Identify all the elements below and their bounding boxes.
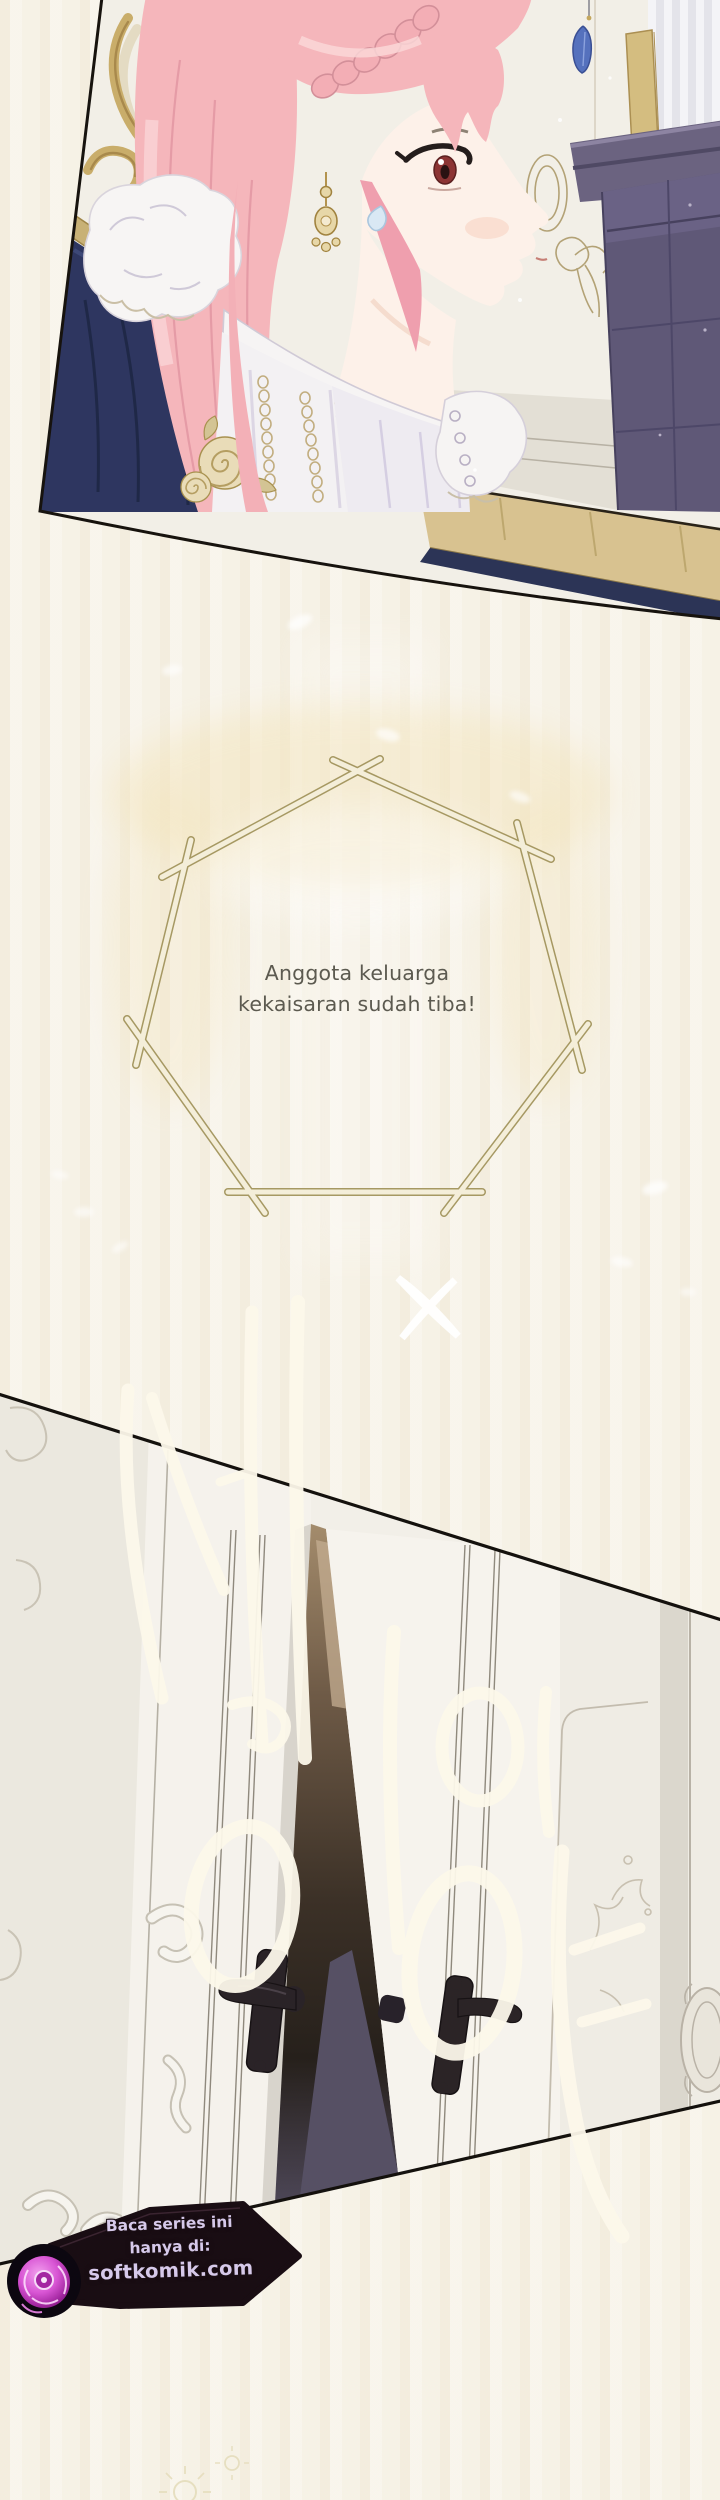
dialogue-line-1: Anggota keluarga [265,961,450,985]
cross-sparkle [398,1278,458,1338]
right-etched-wall [548,1550,720,2270]
watermark: Baca series ini hanya di: softkomik.com [69,2210,271,2286]
dialogue-line-2: kekaisaran sudah tiba! [238,992,476,1016]
blush [465,217,509,239]
dialogue-box: Anggota keluarga kekaisaran sudah tiba! [157,958,557,1020]
background-glow [110,640,610,1260]
panel-top-illustration [0,0,720,625]
comic-page: Anggota keluarga kekaisaran sudah tiba! … [0,0,720,2500]
comic-artwork [0,0,720,2500]
panel-doors-illustration [0,1390,720,2270]
bottom-sparkles [159,2446,249,2500]
